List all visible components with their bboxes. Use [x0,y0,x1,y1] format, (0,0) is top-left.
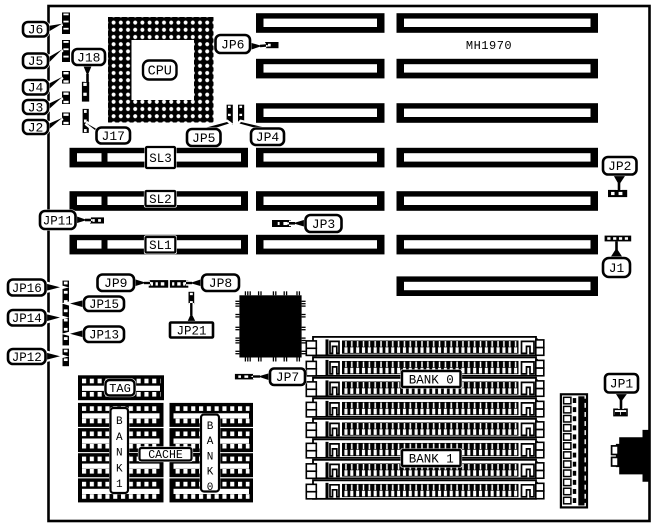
svg-text:BANK 1: BANK 1 [409,452,454,466]
svg-text:K: K [207,467,214,479]
svg-text:K: K [116,463,123,475]
svg-text:J4: J4 [28,81,44,96]
svg-text:J3: J3 [28,100,44,115]
svg-text:J17: J17 [102,129,125,144]
svg-text:JP1: JP1 [610,377,634,392]
svg-text:JP15: JP15 [89,298,119,312]
svg-text:JP4: JP4 [256,130,280,145]
svg-text:J5: J5 [28,54,44,69]
svg-text:SL3: SL3 [149,152,172,166]
svg-text:JP11: JP11 [43,214,73,228]
svg-text:JP21: JP21 [176,324,206,338]
svg-text:JP14: JP14 [12,312,42,326]
svg-text:B: B [207,421,214,433]
svg-text:BANK 0: BANK 0 [409,373,454,387]
svg-text:N: N [116,448,123,460]
svg-text:0: 0 [207,482,214,494]
svg-text:CPU: CPU [148,65,172,80]
svg-text:JP7: JP7 [276,370,299,385]
svg-text:J6: J6 [28,23,44,38]
svg-text:MH1970: MH1970 [466,39,512,53]
svg-text:A: A [207,436,214,448]
svg-text:JP5: JP5 [192,131,215,146]
svg-text:SL1: SL1 [149,239,172,253]
svg-text:JP3: JP3 [312,217,335,232]
svg-text:JP6: JP6 [221,37,244,52]
svg-text:JP16: JP16 [12,282,42,296]
svg-text:JP8: JP8 [209,276,232,291]
svg-text:JP13: JP13 [89,329,119,343]
svg-text:J2: J2 [28,120,44,135]
svg-text:JP2: JP2 [608,159,631,174]
svg-text:JP12: JP12 [12,351,42,365]
svg-text:1: 1 [116,479,123,491]
svg-text:TAG: TAG [109,382,131,396]
svg-text:N: N [207,451,214,463]
svg-text:J18: J18 [77,50,100,65]
svg-text:JP9: JP9 [104,276,127,291]
svg-text:CACHE: CACHE [148,449,183,462]
svg-text:B: B [116,416,123,428]
svg-text:SL2: SL2 [149,193,172,207]
svg-text:J1: J1 [609,261,625,276]
svg-text:A: A [116,432,123,444]
